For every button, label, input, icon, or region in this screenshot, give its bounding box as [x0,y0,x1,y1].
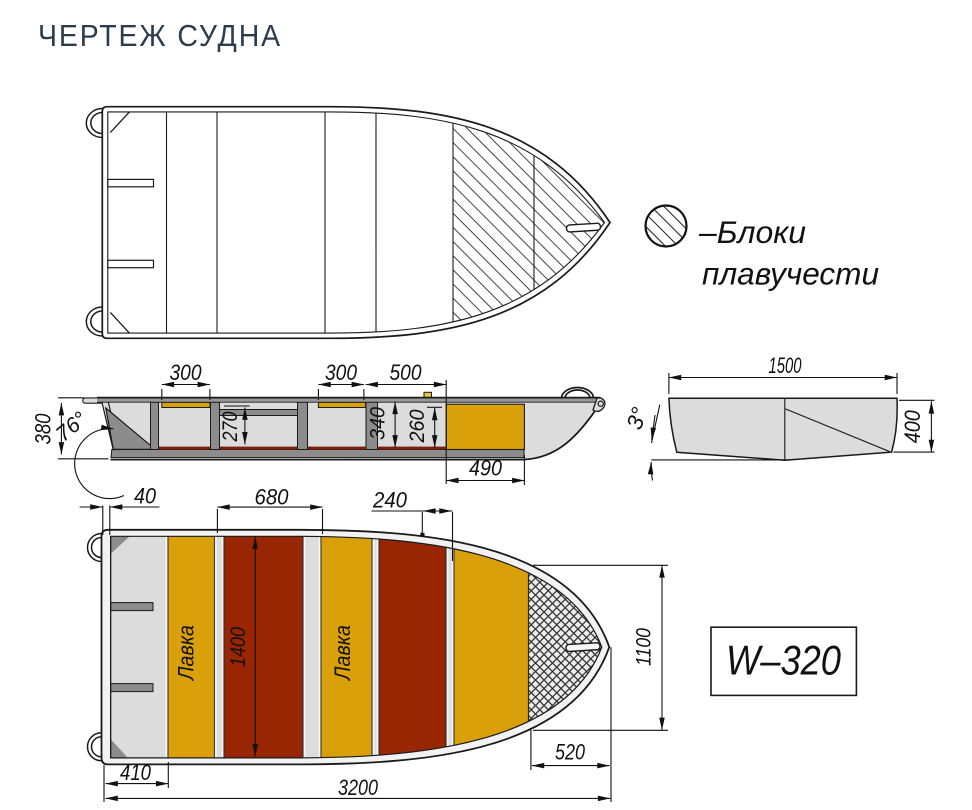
svg-text:–Блоки: –Блоки [698,214,806,250]
svg-text:260: 260 [406,409,429,443]
svg-text:40: 40 [134,484,156,509]
svg-text:3200: 3200 [338,775,378,800]
svg-text:Лавка: Лавка [174,625,199,682]
svg-text:240: 240 [372,488,407,513]
svg-text:76°: 76° [51,407,92,447]
svg-text:плавучести: плавучести [702,256,879,292]
svg-text:1400: 1400 [227,627,250,667]
svg-text:490: 490 [469,456,502,481]
svg-text:W–320: W–320 [726,637,842,684]
svg-text:340: 340 [367,407,390,440]
svg-text:680: 680 [255,485,289,510]
svg-text:500: 500 [390,360,422,385]
svg-text:270: 270 [219,411,242,442]
svg-text:410: 410 [120,760,151,785]
svg-text:ЧЕРТЕЖ СУДНА: ЧЕРТЕЖ СУДНА [38,19,282,53]
svg-text:520: 520 [555,740,585,765]
svg-text:1500: 1500 [769,353,802,378]
svg-text:Лавка: Лавка [330,625,355,682]
svg-text:300: 300 [170,360,202,385]
svg-text:1100: 1100 [633,628,656,666]
svg-text:400: 400 [900,410,925,443]
svg-text:300: 300 [325,360,357,385]
svg-text:3°: 3° [622,404,653,433]
